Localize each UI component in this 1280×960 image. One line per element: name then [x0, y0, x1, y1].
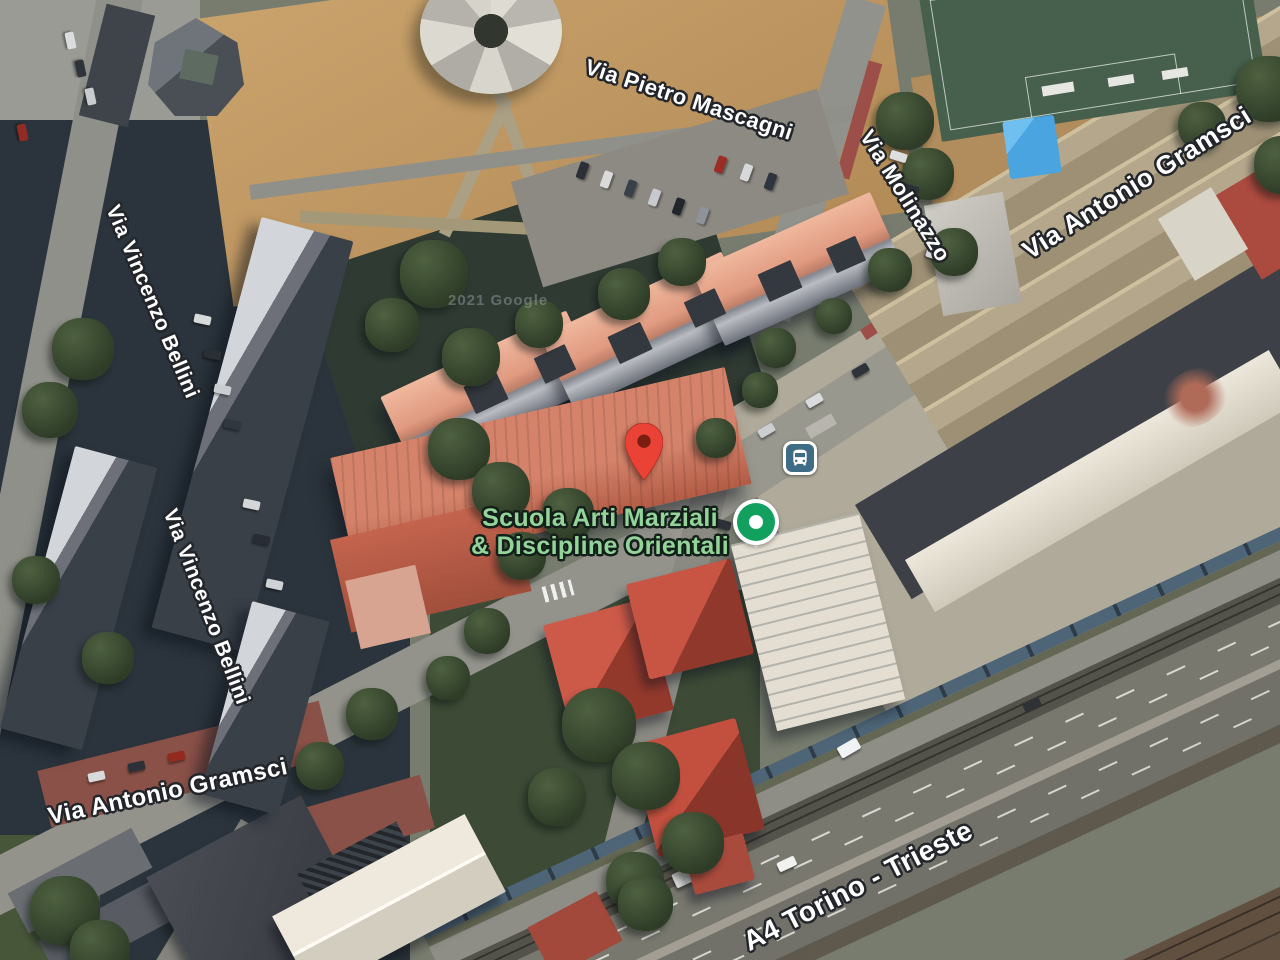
tree: [696, 418, 736, 458]
tree: [296, 742, 344, 790]
poi-label-line1: Scuola Arti Marziali: [471, 504, 729, 532]
tree: [756, 328, 796, 368]
tree: [22, 382, 78, 438]
poi-marker-dot: [749, 515, 763, 529]
tree: [612, 742, 680, 810]
tree: [816, 298, 852, 334]
tree: [426, 656, 470, 700]
swimming-pool: [1002, 115, 1062, 180]
poi-marker-green[interactable]: [733, 499, 779, 555]
dropped-pin-red[interactable]: [625, 423, 663, 480]
tree: [662, 812, 724, 874]
tree: [598, 268, 650, 320]
tree: [52, 318, 114, 380]
school-roof-light-section: [345, 565, 431, 649]
railway-siding: [1020, 826, 1280, 960]
tree: [365, 298, 419, 352]
tree: [658, 238, 706, 286]
poi-label-scuola-arti-marziali[interactable]: Scuola Arti Marziali & Discipline Orient…: [471, 504, 729, 560]
poi-label-line2: & Discipline Orientali: [471, 532, 729, 560]
satellite-map-canvas[interactable]: 2021 Google Via Pietro Mascagni Via Moli…: [0, 0, 1280, 960]
tree: [12, 556, 60, 604]
tree: [528, 768, 586, 826]
tree: [82, 632, 134, 684]
tree: [442, 328, 500, 386]
tree: [618, 876, 673, 931]
tree: [868, 248, 912, 292]
tree: [464, 608, 510, 654]
google-attribution: 2021 Google: [448, 292, 548, 309]
tree: [346, 688, 398, 740]
bus-icon: [786, 444, 814, 472]
bus-stop-icon[interactable]: [783, 441, 817, 475]
tree: [742, 372, 778, 408]
